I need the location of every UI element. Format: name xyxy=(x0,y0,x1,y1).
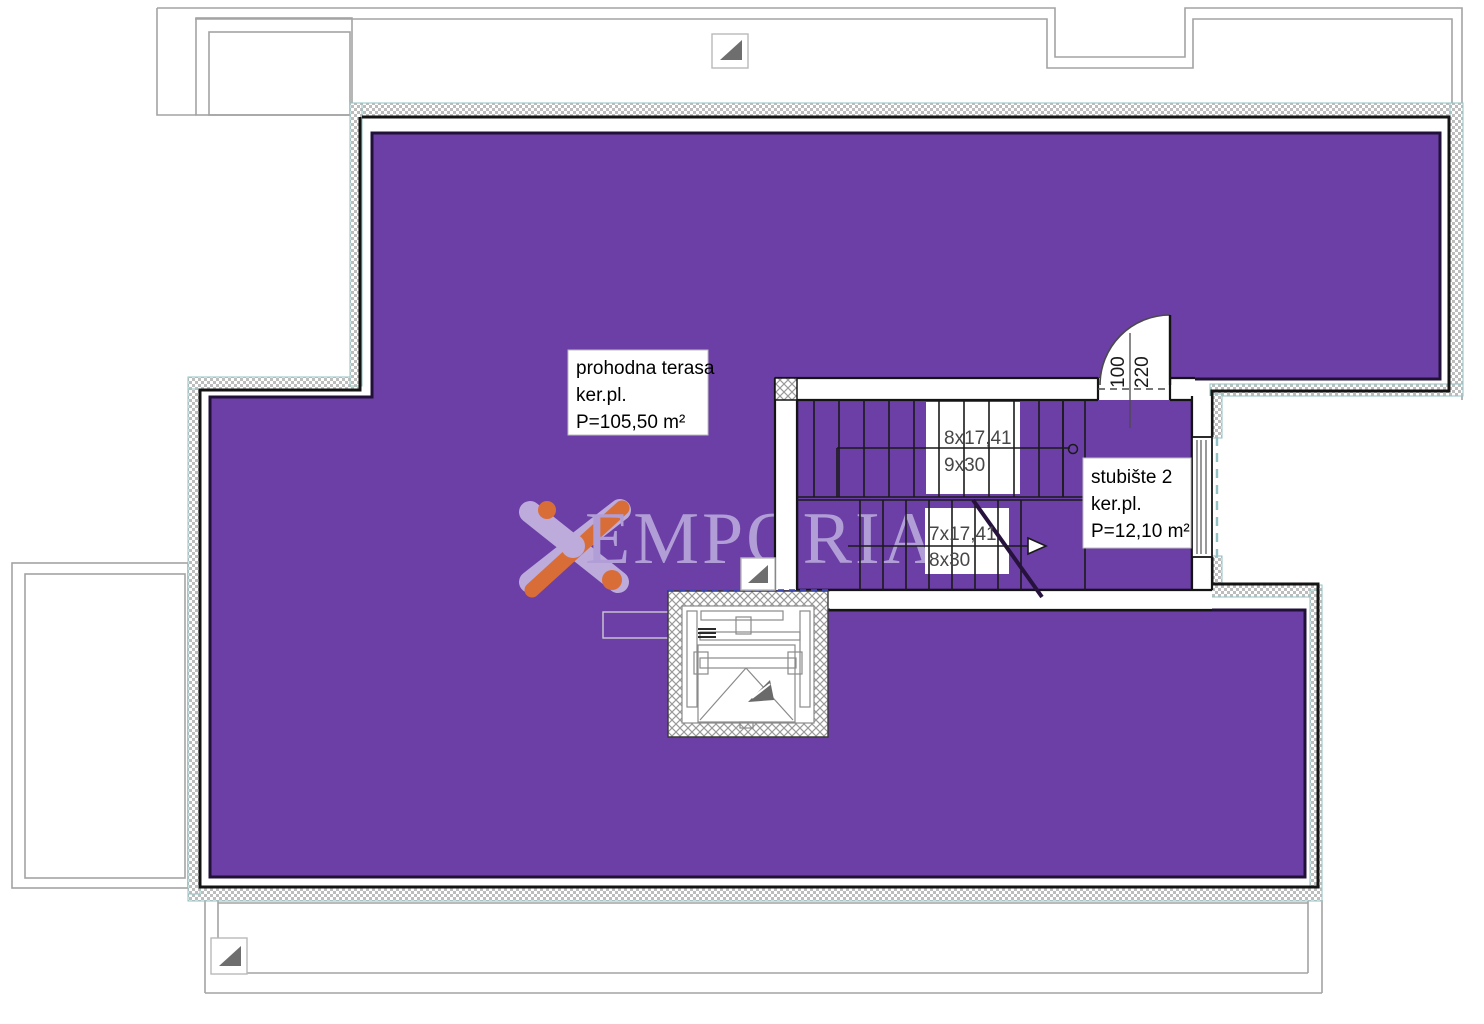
roof-left-court-inner xyxy=(25,574,185,878)
terrace-area-text: P=105,50 m² xyxy=(576,412,685,433)
lower-flight-risers-text: 7x17,41 xyxy=(929,524,997,545)
image-placeholder-icon-top xyxy=(712,34,748,68)
roof-notch-top-left-inner xyxy=(209,32,350,115)
insulation-left xyxy=(188,384,200,894)
lower-flight-treads-text: 8x30 xyxy=(929,550,970,571)
elevator-shaft xyxy=(668,590,828,737)
shaft-interior xyxy=(682,606,814,723)
upper-flight-risers-text: 8x17,41 xyxy=(944,428,1012,449)
stair-left-wall xyxy=(775,378,797,590)
door-width-text: 100 xyxy=(1108,356,1129,388)
logo-orange-dot-top xyxy=(538,501,556,519)
floor-plan-svg: EMPORIA xyxy=(0,0,1484,1024)
stair-bottom-wall xyxy=(830,590,1212,610)
wall-end-hatched-block xyxy=(775,378,797,400)
staircase-label-box: stubište 2 ker.pl. P=12,10 m² xyxy=(1083,458,1191,548)
image-placeholder-icon-bottom xyxy=(211,938,247,974)
terrace-finish-text: ker.pl. xyxy=(576,385,627,406)
staircase-finish-text: ker.pl. xyxy=(1091,494,1142,515)
floor-plan-canvas: EMPORIA xyxy=(0,0,1484,1024)
roof-bottom-horizontals xyxy=(205,903,1322,993)
insulation-stub-bottom-h xyxy=(1210,585,1322,597)
staircase-area-text: P=12,10 m² xyxy=(1091,521,1190,542)
window-frame xyxy=(1192,437,1212,557)
upper-flight-treads-text: 9x30 xyxy=(944,455,985,476)
roof-bottom-verticals xyxy=(205,893,1322,993)
door-height-text: 220 xyxy=(1132,356,1153,388)
roof-left-court-outer xyxy=(12,563,188,888)
insulation-top xyxy=(352,103,1462,116)
image-placeholder-icon-middle xyxy=(741,558,775,590)
roof-outline-left-step xyxy=(157,8,196,115)
terrace-name-text: prohodna terasa xyxy=(576,358,715,379)
roof-outline-inner xyxy=(195,19,1452,103)
stair-window xyxy=(1192,437,1212,557)
insulation-right-lower xyxy=(1310,590,1322,900)
insulation-left-step-h xyxy=(188,377,360,389)
logo-center-dot xyxy=(561,534,585,558)
insulation-right-upper xyxy=(1450,103,1463,395)
insulation-bottom xyxy=(188,888,1322,901)
terrace-label-box: prohodna terasa ker.pl. P=105,50 m² xyxy=(568,350,715,435)
staircase-name-text: stubište 2 xyxy=(1091,467,1172,488)
